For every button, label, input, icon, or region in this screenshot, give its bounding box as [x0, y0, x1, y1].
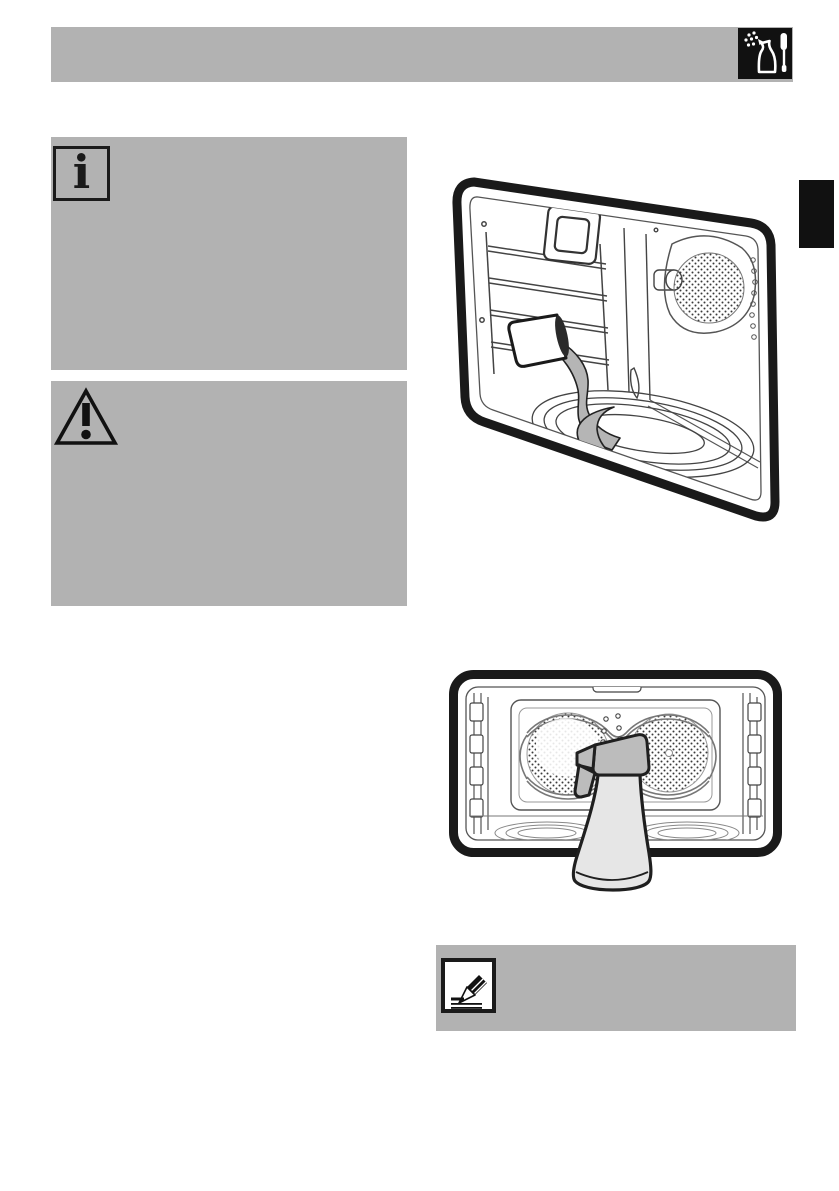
manual-page: i — [0, 0, 839, 1191]
warning-callout-box — [51, 381, 407, 606]
pencil-note-icon — [441, 958, 496, 1013]
figure-oven-pouring-water — [448, 172, 792, 534]
note-callout-box — [436, 945, 796, 1031]
info-glyph: i — [73, 149, 90, 195]
info-callout-box: i — [51, 137, 407, 370]
figure-oven-spray-cleaning — [447, 667, 787, 899]
chapter-edge-marker — [799, 180, 834, 248]
header-bar — [51, 27, 793, 82]
cleaning-spray-and-brush-icon — [738, 28, 792, 79]
warning-triangle-icon — [53, 387, 119, 449]
info-icon: i — [53, 146, 110, 201]
